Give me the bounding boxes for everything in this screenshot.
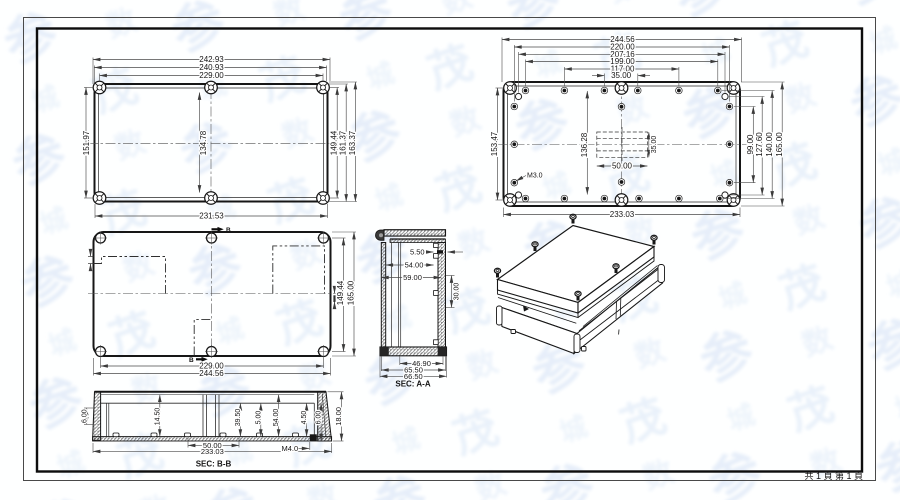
svg-text:140.00: 140.00 — [765, 132, 774, 157]
svg-text:151.97: 151.97 — [82, 130, 91, 155]
svg-text:B: B — [189, 357, 194, 364]
svg-text:39.50: 39.50 — [235, 409, 242, 427]
svg-text:163.37: 163.37 — [348, 130, 357, 155]
svg-text:233.03: 233.03 — [610, 210, 635, 219]
svg-text:SEC: B-B: SEC: B-B — [196, 460, 232, 469]
svg-text:233.03: 233.03 — [201, 447, 224, 456]
svg-text:5.50: 5.50 — [410, 248, 425, 257]
svg-text:6.00: 6.00 — [316, 411, 323, 425]
svg-text:149.44: 149.44 — [336, 280, 345, 305]
svg-text:127.60: 127.60 — [755, 132, 764, 157]
svg-text:161.37: 161.37 — [339, 130, 348, 155]
svg-text:30.00: 30.00 — [453, 283, 460, 301]
svg-text:B: B — [226, 227, 231, 234]
svg-text:共 1 頁 第 1 頁: 共 1 頁 第 1 頁 — [804, 470, 863, 481]
svg-text:14.50: 14.50 — [154, 408, 161, 426]
svg-text:165.00: 165.00 — [347, 280, 356, 305]
svg-text:54.00: 54.00 — [405, 261, 424, 270]
svg-text:231.53: 231.53 — [199, 212, 224, 221]
svg-text:136.28: 136.28 — [580, 132, 589, 157]
svg-text:244.56: 244.56 — [199, 369, 224, 378]
svg-text:153.47: 153.47 — [490, 131, 499, 156]
svg-text:229.00: 229.00 — [199, 71, 224, 80]
svg-text:M4.0: M4.0 — [281, 444, 298, 453]
svg-text:59.00: 59.00 — [403, 273, 422, 282]
svg-text:SEC: A-A: SEC: A-A — [395, 380, 430, 389]
svg-text:50.00: 50.00 — [612, 162, 633, 171]
svg-text:134.78: 134.78 — [199, 130, 208, 155]
svg-text:6.00: 6.00 — [81, 409, 88, 423]
svg-text:165.00: 165.00 — [775, 132, 784, 157]
svg-text:99.00: 99.00 — [746, 134, 755, 155]
svg-text:149.44: 149.44 — [330, 130, 339, 155]
svg-text:5.00: 5.00 — [255, 411, 262, 425]
svg-text:35.00: 35.00 — [611, 71, 632, 80]
svg-text:4.50: 4.50 — [301, 411, 308, 425]
svg-text:M3.0: M3.0 — [527, 173, 543, 180]
svg-text:18.00: 18.00 — [334, 407, 343, 426]
svg-text:54.00: 54.00 — [273, 409, 280, 427]
svg-text:35.00: 35.00 — [651, 136, 658, 154]
